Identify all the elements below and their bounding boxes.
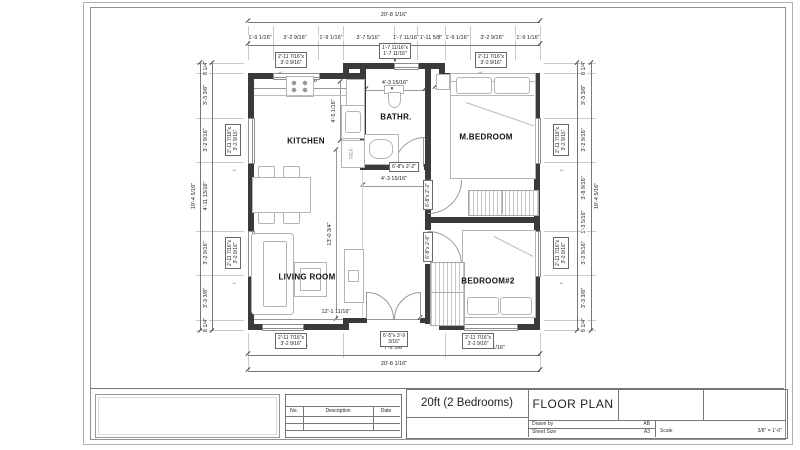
window-size-label: 2'-11 7/16"x3'-2 9/16" bbox=[553, 237, 569, 269]
wall bbox=[431, 217, 534, 223]
dimension-text: 3'-2 9/16" bbox=[282, 35, 307, 41]
dimension-text: 3'-2 9/16" bbox=[203, 127, 209, 152]
drawing-title: FLOOR PLAN bbox=[532, 397, 613, 411]
extension-line bbox=[544, 73, 596, 74]
extension-line bbox=[343, 26, 344, 60]
stove bbox=[286, 76, 314, 97]
sheet-frame-inner bbox=[90, 7, 786, 440]
revision-header-description: Description bbox=[324, 408, 351, 414]
dimension-line bbox=[336, 150, 337, 318]
pillow bbox=[456, 77, 492, 94]
window-size-line2: 3'-2 9/16" bbox=[478, 60, 504, 66]
window-direction-arrow-icon: ← bbox=[559, 167, 565, 173]
room-label-living-room: LIVING ROOM bbox=[278, 273, 335, 282]
drawn-by-value: AB bbox=[643, 421, 650, 427]
dimension-text: 4'-11 13/16" bbox=[203, 181, 209, 212]
dimension-text: 3'-2 9/16" bbox=[479, 35, 504, 41]
dimension-text: 3'-3 3/8" bbox=[581, 287, 587, 309]
dimension-text: 3'-2 9/16" bbox=[581, 127, 587, 152]
window-direction-arrow-icon: → bbox=[477, 69, 483, 75]
bed-blanket-line bbox=[450, 95, 534, 96]
refrigerator-label: REF. bbox=[349, 146, 355, 160]
room-label-bathroom: BATHR. bbox=[380, 113, 411, 122]
extension-line bbox=[544, 320, 596, 321]
dimension-text: 1'-9 1/16" bbox=[247, 35, 272, 41]
dimension-text: 8 1/4" bbox=[203, 60, 209, 76]
window-size-line2: 1'-7 11/16" bbox=[382, 51, 408, 57]
dimension-text: 12'-1 11/16" bbox=[321, 309, 352, 315]
extension-line bbox=[196, 231, 244, 232]
wardrobe-divider bbox=[430, 292, 463, 293]
model-title: 20ft (2 Bedrooms) bbox=[421, 397, 513, 409]
sheet-size-value: A3 bbox=[644, 429, 650, 435]
dimension-line bbox=[591, 63, 592, 330]
door-size-label: 6'-8"x 2'-2" bbox=[389, 162, 419, 172]
room-label-bedroom2: BEDROOM#2 bbox=[461, 277, 514, 286]
dimension-text: 4'-5 1/16" bbox=[331, 98, 337, 123]
window bbox=[394, 63, 419, 70]
dimension-text: 13'-0 3/4" bbox=[327, 221, 333, 246]
dimension-text: 3'-3 3/8" bbox=[203, 84, 209, 106]
dimension-line bbox=[248, 22, 540, 23]
dimension-text: 3'-2 9/16" bbox=[581, 240, 587, 265]
extension-line bbox=[273, 26, 274, 60]
entry-door-line2: 3/16" bbox=[383, 339, 405, 345]
dimension-marker-icon: ▼ bbox=[390, 86, 394, 92]
dimension-line bbox=[200, 63, 201, 330]
titleblock-line bbox=[703, 389, 704, 420]
extension-line bbox=[417, 26, 418, 60]
dimension-text: 19'-4 5/16" bbox=[594, 182, 600, 210]
window-size-line2: 3'-2 9/16" bbox=[561, 240, 567, 266]
titleblock-line bbox=[406, 417, 528, 418]
dimension-text: 8 1/4" bbox=[581, 317, 587, 333]
kitchen-counter bbox=[346, 79, 365, 107]
window-size-line2: 3'-2 9/16" bbox=[278, 60, 304, 66]
dimension-line bbox=[577, 63, 578, 330]
dimension-text: 3'-3 3/8" bbox=[203, 287, 209, 309]
tv-screen bbox=[348, 270, 359, 282]
revision-table-line bbox=[303, 406, 304, 430]
wall bbox=[349, 318, 367, 323]
door-leaf bbox=[423, 137, 424, 167]
pillow bbox=[467, 297, 499, 315]
door-size-text: 6'-8"x 2'-2" bbox=[392, 164, 416, 170]
dining-chair bbox=[258, 212, 275, 224]
door-size-label: 6'-8"x 2'-6" bbox=[423, 232, 433, 262]
window-size-label: 2'-11 7/16"x3'-2 9/16" bbox=[275, 52, 307, 68]
dimension-line bbox=[248, 371, 540, 372]
dimension-line bbox=[248, 355, 540, 356]
door-size-label: 6'-8"x 2'-2" bbox=[423, 180, 433, 210]
sheet-size-label: Sheet Size bbox=[532, 429, 556, 435]
dresser bbox=[468, 190, 539, 216]
dimension-text: 3'-3 3/8" bbox=[581, 84, 587, 106]
revision-table-line bbox=[285, 430, 400, 431]
extension-line bbox=[445, 26, 446, 60]
dimension-line bbox=[363, 186, 425, 187]
dining-table bbox=[252, 177, 311, 213]
window-size-line2: 3'-2 9/16" bbox=[465, 341, 491, 347]
dimension-text: 1'-3 5/16" bbox=[581, 209, 587, 234]
revision-table-line bbox=[373, 406, 374, 430]
dresser-divider bbox=[502, 190, 503, 214]
wall bbox=[343, 63, 349, 79]
pillow bbox=[500, 297, 532, 315]
dimension-text: 20'-8 1/16" bbox=[380, 361, 408, 367]
entry-door-size-label: 6'-5"x 3'-93/16" bbox=[380, 331, 408, 347]
door-size-text: 6'-8"x 2'-2" bbox=[425, 183, 431, 207]
dimension-text: 1'-9 1/16" bbox=[515, 35, 540, 41]
dimension-text: 19'-4 5/16" bbox=[191, 182, 197, 210]
room-label-master-bedroom: M.BEDROOM bbox=[459, 133, 512, 142]
scale-label: Scale bbox=[660, 428, 673, 434]
drawing-sheet: 20'-8 1/16" 20'-8 1/16" 19'-4 5/16" 19'-… bbox=[0, 0, 800, 450]
kitchen-sink-basin bbox=[345, 111, 361, 133]
extension-line bbox=[515, 26, 516, 60]
toilet bbox=[388, 92, 401, 108]
extension-line bbox=[544, 162, 596, 163]
extension-line bbox=[544, 275, 596, 276]
drawn-by-label: Drawn by bbox=[532, 421, 553, 427]
window bbox=[248, 118, 255, 164]
extension-line bbox=[318, 26, 319, 60]
scale-value: 3/8" = 1'-0" bbox=[758, 428, 782, 434]
window-size-label: 2'-11 7/16"x3'-2 9/16" bbox=[462, 333, 494, 349]
door-leaf bbox=[420, 292, 421, 319]
door-size-text: 6'-8"x 2'-6" bbox=[425, 235, 431, 259]
window-size-label: 2'-11 7/16"x3'-2 9/16" bbox=[275, 333, 307, 349]
titleblock-line bbox=[655, 420, 656, 437]
dimension-text: 3'-7 5/16" bbox=[355, 35, 380, 41]
door-leaf bbox=[366, 292, 367, 319]
dimension-text: 4'-3 15/16" bbox=[380, 176, 408, 182]
dimension-line bbox=[212, 63, 213, 330]
titleblock-line bbox=[528, 420, 786, 421]
window-direction-arrow-icon: → bbox=[277, 69, 283, 75]
dimension-line bbox=[252, 319, 420, 320]
titleblock-line bbox=[618, 389, 619, 420]
window-size-label: 1'-7 11/16"x1'-7 11/16" bbox=[379, 43, 411, 59]
extension-line bbox=[470, 26, 471, 60]
dining-chair bbox=[283, 212, 300, 224]
kitchen-counter-line bbox=[254, 95, 346, 96]
window-size-line2: 3'-2 9/16" bbox=[561, 127, 567, 153]
room-label-kitchen: KITCHEN bbox=[287, 137, 325, 146]
dimension-text: 20'-8 1/16" bbox=[380, 12, 408, 18]
window-size-line2: 3'-2 9/16" bbox=[233, 127, 239, 153]
window-size-label: 2'-11 7/16"x3'-2 9/16" bbox=[225, 237, 241, 269]
extension-line bbox=[196, 275, 244, 276]
dimension-text: 1'-11 5/8" bbox=[419, 35, 444, 41]
window-size-label: 2'-11 7/16"x3'-2 9/16" bbox=[553, 124, 569, 156]
window-direction-arrow-icon: → bbox=[231, 167, 237, 173]
vanity-basin bbox=[369, 139, 393, 159]
window-size-line2: 3'-2 9/16" bbox=[233, 240, 239, 266]
window-marker-icon: ▼ bbox=[393, 58, 397, 64]
window-size-label: 2'-11 7/16"x3'-2 9/16" bbox=[475, 52, 507, 68]
extension-line bbox=[196, 162, 244, 163]
dimension-text: 8 1/4" bbox=[581, 60, 587, 76]
window-size-label: 2'-11 7/16"x3'-2 9/16" bbox=[225, 124, 241, 156]
titleblock-line bbox=[528, 389, 529, 437]
window-size-line2: 3'-2 9/16" bbox=[278, 341, 304, 347]
dimension-text: 1'-9 1/16" bbox=[318, 35, 343, 41]
nightstand bbox=[436, 74, 450, 90]
extension-line bbox=[544, 118, 596, 119]
wardrobe bbox=[430, 262, 465, 326]
extension-line bbox=[544, 231, 596, 232]
revision-header-no: No. bbox=[289, 408, 299, 414]
window bbox=[464, 324, 518, 331]
window bbox=[262, 324, 304, 331]
dimension-text: 1'-7 11/16" bbox=[392, 35, 420, 41]
wall bbox=[424, 164, 431, 170]
dimension-text: 3'-2 9/16" bbox=[203, 240, 209, 265]
window-direction-arrow-icon: ← bbox=[559, 280, 565, 286]
dimension-text: 8 1/4" bbox=[203, 317, 209, 333]
revision-header-date: Date bbox=[380, 408, 393, 414]
titleblock-logo-box-inner bbox=[98, 397, 277, 435]
pillow bbox=[494, 77, 530, 94]
window-direction-arrow-icon: → bbox=[231, 280, 237, 286]
dimension-text: 1'-9 1/16" bbox=[444, 35, 469, 41]
dimension-text: 3'-8 9/16" bbox=[581, 175, 587, 200]
extension-line bbox=[196, 118, 244, 119]
